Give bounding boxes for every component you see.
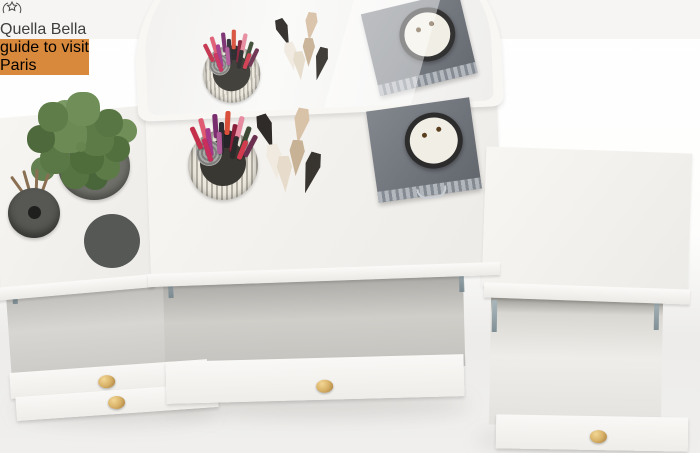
right-side-table-top — [482, 146, 693, 293]
jar-candle — [82, 212, 142, 270]
reflected-cosmetic-tubes — [274, 11, 346, 94]
mirror-glass — [140, 0, 493, 115]
book-title-text: Paris — [0, 57, 89, 75]
right-drawer-front — [496, 414, 689, 451]
color-swatch — [289, 107, 312, 145]
right-drawer-interior — [489, 295, 663, 428]
candle-jar — [84, 214, 140, 268]
drawer-knob — [590, 430, 607, 443]
drawer-knob — [98, 375, 116, 389]
makeup-pencils — [184, 118, 264, 204]
case-zipper-trim — [378, 62, 478, 96]
color-swatch — [217, 132, 223, 154]
color-swatch — [302, 12, 319, 42]
drawer-knob — [316, 380, 333, 393]
center-drawer-front — [166, 354, 465, 404]
reflected-cosmetic-case — [361, 0, 478, 96]
plant-pot — [58, 132, 130, 200]
drawer-slide-rail — [492, 300, 498, 332]
color-swatch — [224, 111, 230, 135]
cosmetic-case — [366, 97, 482, 203]
reflected-brush-cup — [198, 34, 267, 107]
reflected-candle — [394, 2, 461, 68]
vanity-table-scene: Quella Bella — [0, 0, 700, 453]
diffuser-neck — [28, 206, 41, 219]
plant-foliage — [76, 142, 86, 152]
color-swatch — [232, 30, 236, 50]
paris-travel-guide-book: guide to visit Paris — [0, 39, 89, 75]
two-wick-candle — [401, 109, 466, 173]
reed-diffuser — [4, 176, 66, 242]
cosmetic-tubes — [256, 108, 342, 208]
book-overline-text: guide to visit — [0, 39, 89, 57]
crest-icon — [0, 0, 24, 16]
brush-cup — [184, 118, 264, 204]
makeup-pencils — [198, 34, 267, 107]
drawer-knob — [108, 395, 126, 409]
